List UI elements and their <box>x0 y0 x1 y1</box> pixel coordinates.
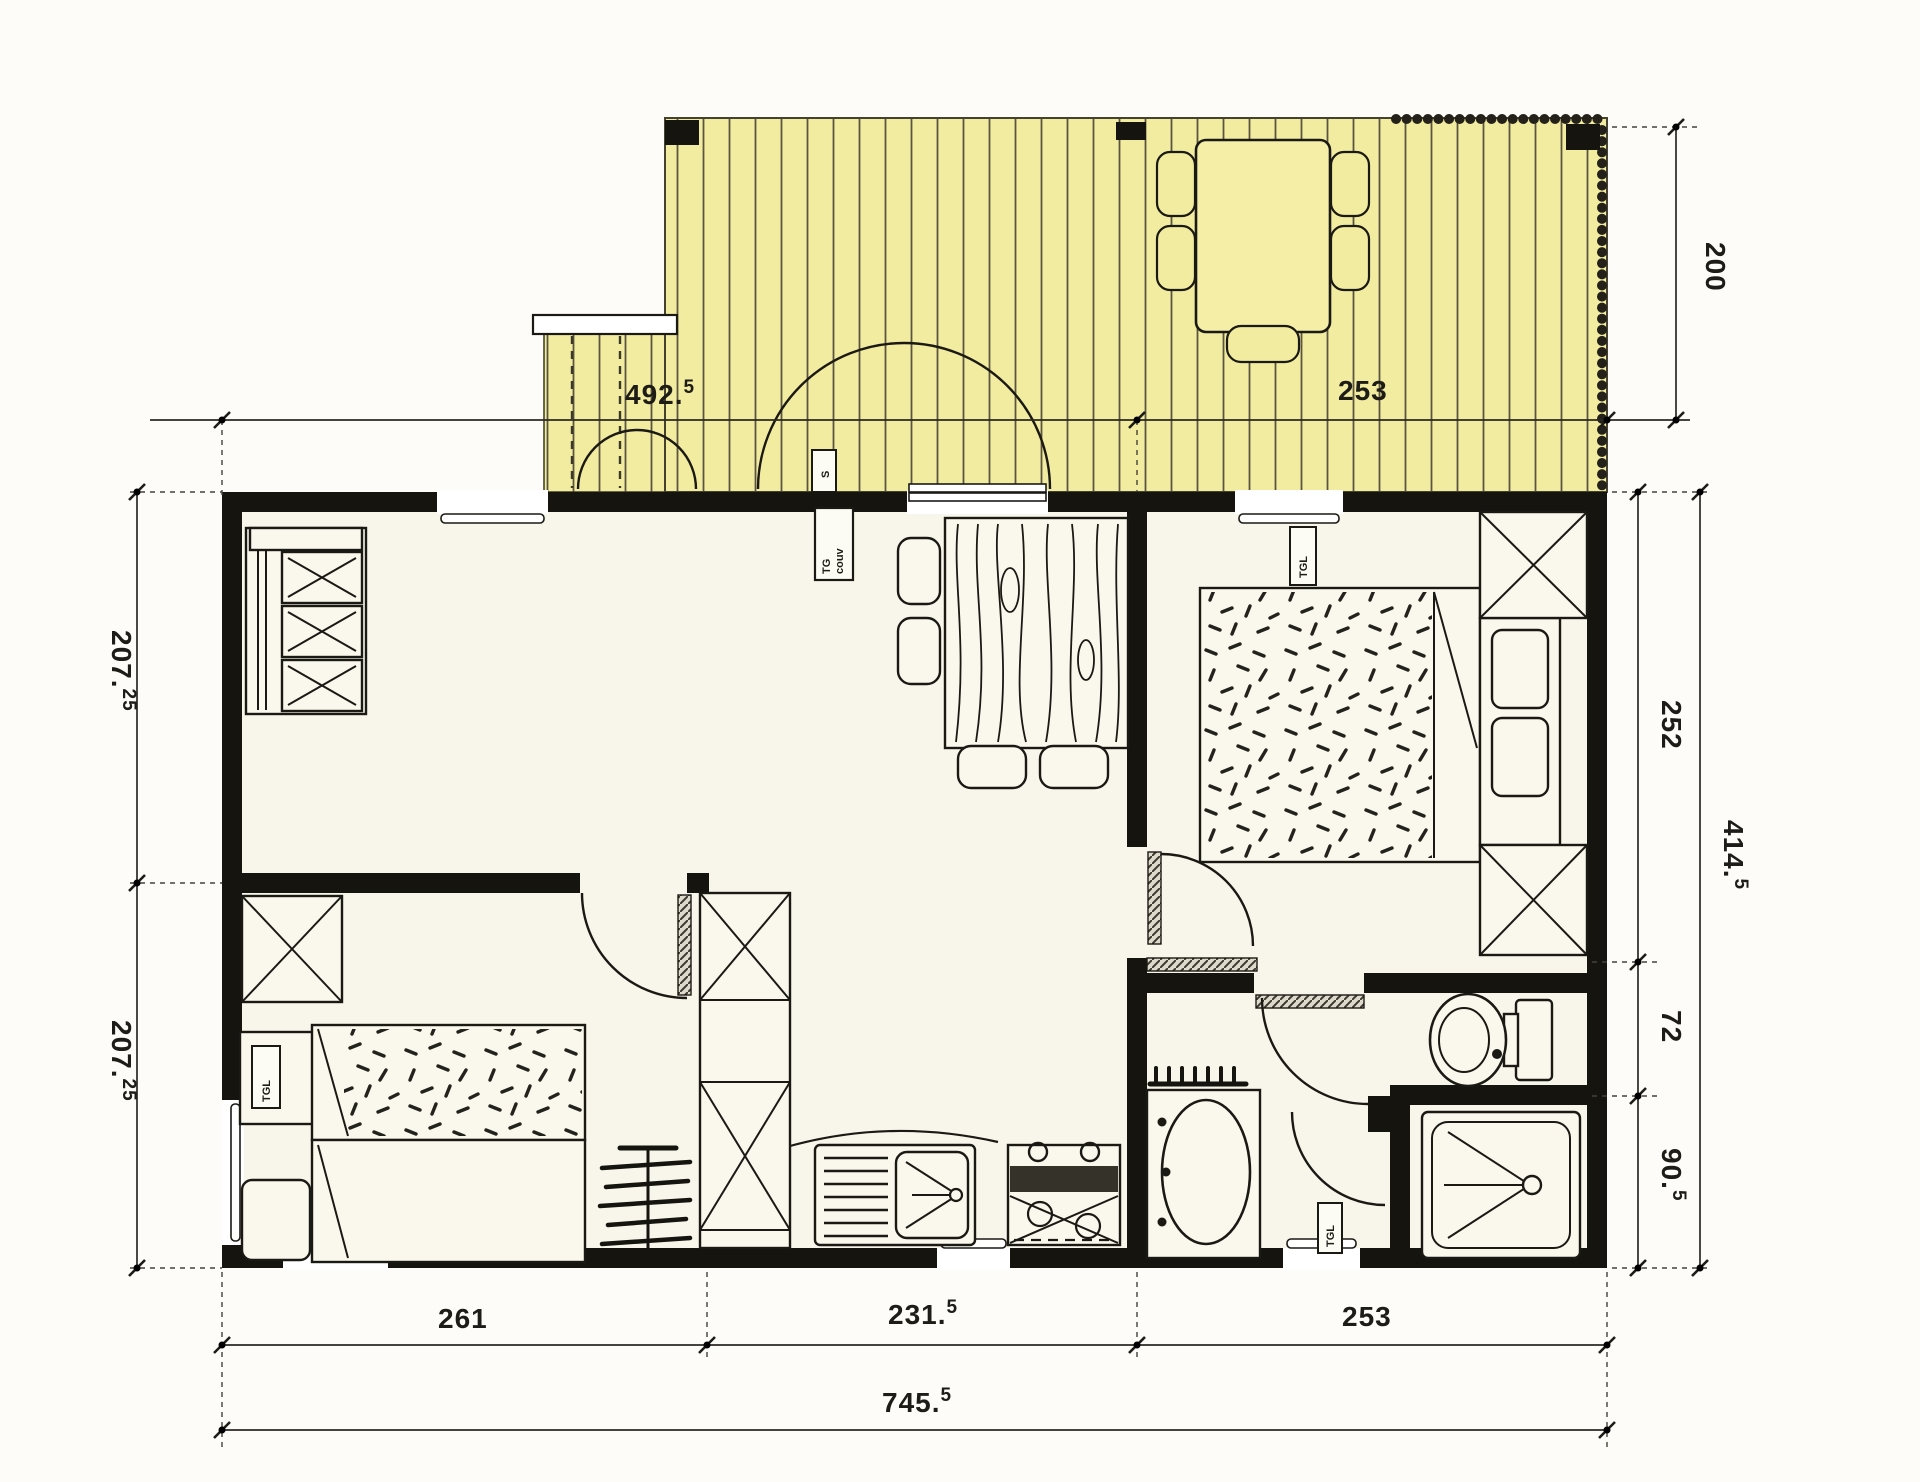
deck: S <box>533 118 1607 492</box>
dimension-bottom: 261 231.5 253 745.5 <box>214 1272 1615 1448</box>
dim-bottom-left: 261 <box>438 1303 488 1334</box>
sofa-cushions <box>282 552 362 711</box>
dim-right-bedroom: 252 <box>1656 700 1687 750</box>
dimension-left: 207.25 207.25 <box>106 484 222 1276</box>
wardrobe-top-right <box>1480 512 1587 618</box>
headboard-cabinet <box>1480 618 1560 845</box>
dim-deck-depth: 200 <box>1700 242 1731 292</box>
sofa <box>246 528 366 714</box>
bench-pad <box>242 1180 310 1260</box>
dim-left-lower: 207.25 <box>106 1020 139 1102</box>
kitchen-sink <box>815 1145 975 1245</box>
dim-bottom-middle: 231.5 <box>888 1297 958 1330</box>
bedroom2-bed-upper <box>312 1025 585 1140</box>
window-bedroom <box>1235 490 1343 523</box>
dining-chair <box>958 746 1026 788</box>
deck-post <box>1116 122 1146 140</box>
unit-label-entry-panel: TGcouv <box>815 508 853 580</box>
dim-bottom-right: 253 <box>1342 1301 1392 1332</box>
window-living <box>437 490 548 523</box>
dim-left-upper: 207.25 <box>106 630 139 712</box>
nightstand: TGL <box>240 1032 314 1124</box>
unit-label-deck-switch: S <box>812 450 836 492</box>
deck-chair <box>1157 226 1195 290</box>
deck-table <box>1196 140 1330 332</box>
shower <box>1422 1112 1580 1258</box>
shower-head-icon <box>1523 1176 1541 1194</box>
bedroom2-wardrobe <box>242 896 342 1002</box>
deck-post <box>1566 124 1600 150</box>
dimension-deck-depth: 200 <box>1612 119 1731 428</box>
deck-chair <box>1157 152 1195 216</box>
unit-label-bedroom-heater: TGL <box>1290 527 1316 585</box>
dim-right-shower: 90.5 <box>1656 1148 1689 1202</box>
deck-chair <box>1227 326 1299 362</box>
floor-plan-page: S <box>0 0 1920 1482</box>
unit-label-bathroom-heater: TGL <box>1318 1203 1342 1253</box>
dim-bottom-total: 745.5 <box>882 1385 952 1418</box>
deck-chair <box>1331 226 1369 290</box>
bedroom2-bed-lower <box>312 1140 585 1262</box>
deck-post <box>665 120 699 145</box>
wardrobe-bottom-right <box>1480 845 1587 955</box>
dimension-right: 252 72 90.5 414.5 <box>1592 484 1751 1276</box>
dim-right-total: 414.5 <box>1718 820 1751 890</box>
floor-plan-svg: S <box>0 0 1920 1482</box>
dining-chair <box>898 538 940 604</box>
dining-chair <box>898 618 940 684</box>
dim-deck-right: 253 <box>1338 375 1388 406</box>
svg-text:S: S <box>820 471 832 478</box>
vanity <box>1147 1090 1260 1258</box>
hall-closet <box>700 893 790 1248</box>
stove <box>1008 1143 1120 1245</box>
unit-label-bedroom2-heater: TGL <box>261 1080 273 1102</box>
master-bed <box>1200 588 1480 862</box>
deck-chair <box>1331 152 1369 216</box>
toilet <box>1430 994 1552 1086</box>
dining-table <box>945 518 1128 748</box>
entry-opening <box>907 484 1048 514</box>
dining-chair <box>1040 746 1108 788</box>
svg-text:TGL: TGL <box>1325 1225 1337 1247</box>
svg-text:TGL: TGL <box>1298 556 1310 578</box>
washbasin <box>1162 1100 1250 1244</box>
dim-right-wc: 72 <box>1656 1010 1687 1043</box>
